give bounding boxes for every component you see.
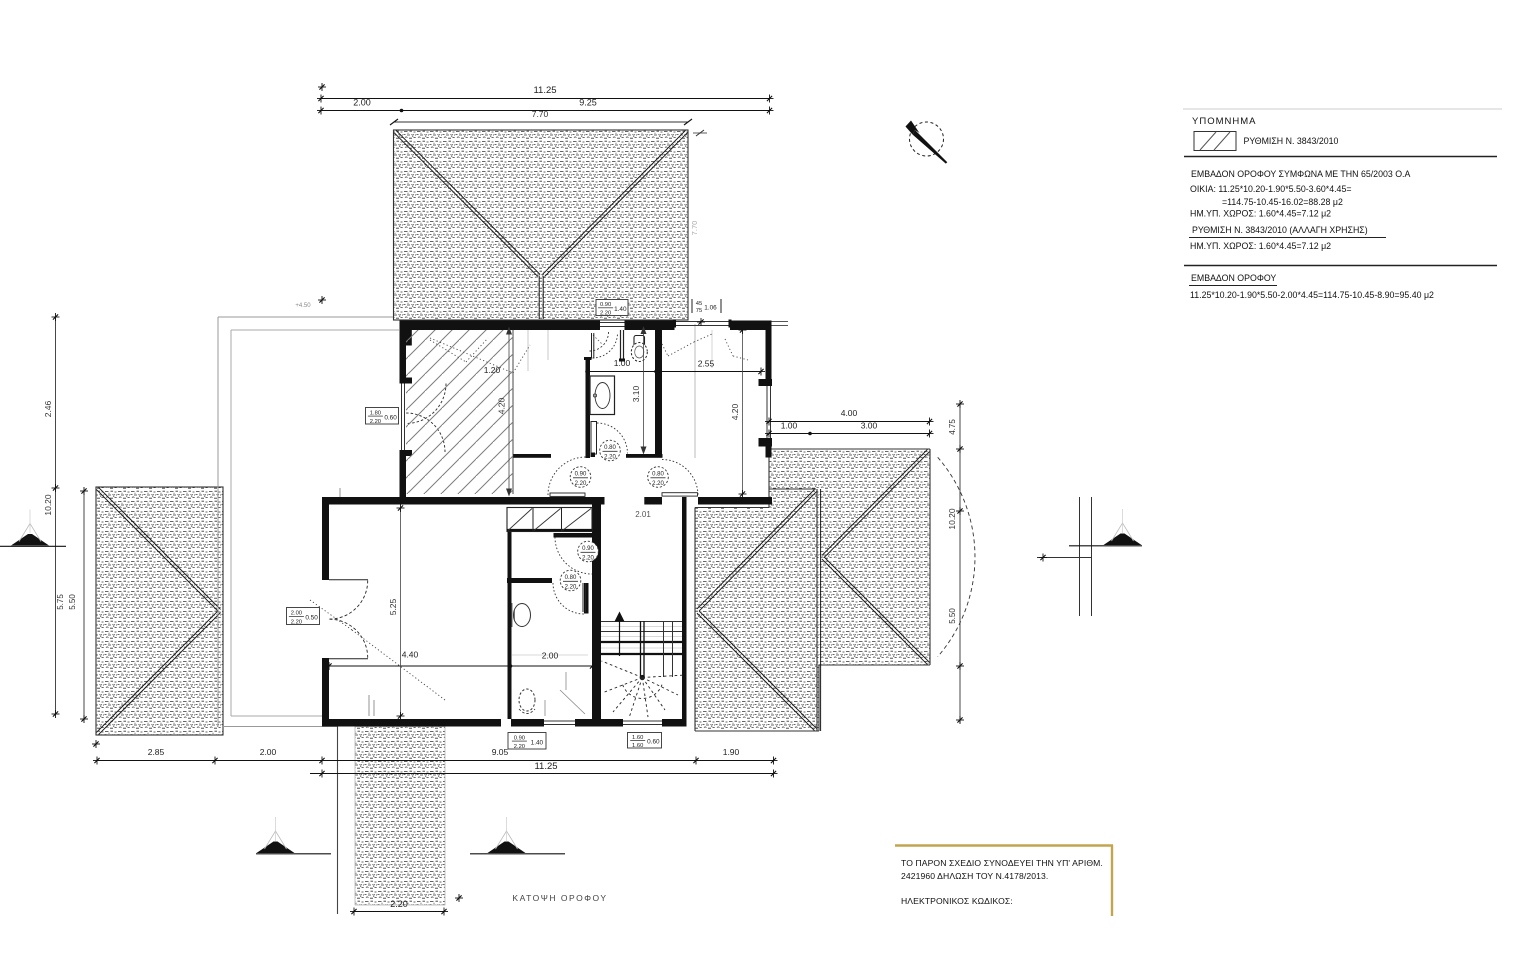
svg-text:0.80: 0.80 (652, 471, 664, 477)
svg-text:ΕΜΒΑΔΟΝ ΟΡΟΦΟΥ ΣΥΜΦΩΝΑ ΜΕ ΤΗΝ: ΕΜΒΑΔΟΝ ΟΡΟΦΟΥ ΣΥΜΦΩΝΑ ΜΕ ΤΗΝ 65/2003 Ο.… (1191, 169, 1410, 179)
svg-text:4.00: 4.00 (841, 408, 858, 418)
svg-text:0.80: 0.80 (565, 575, 577, 581)
svg-text:2.20: 2.20 (514, 744, 525, 750)
svg-text:11.25*10.20-1.90*5.50-2.00*4.4: 11.25*10.20-1.90*5.50-2.00*4.45=114.75-1… (1190, 290, 1434, 300)
svg-text:1.40: 1.40 (614, 306, 627, 313)
svg-text:3.10: 3.10 (631, 385, 641, 402)
svg-text:4.75: 4.75 (948, 419, 957, 435)
svg-text:ΕΜΒΑΔΟΝ ΟΡΟΦΟΥ: ΕΜΒΑΔΟΝ ΟΡΟΦΟΥ (1191, 273, 1276, 283)
svg-text:1.40: 1.40 (531, 739, 544, 746)
svg-text:=114.75-10.45-16.02=88.28 μ2: =114.75-10.45-16.02=88.28 μ2 (1222, 197, 1343, 207)
svg-text:1.06: 1.06 (704, 305, 717, 312)
svg-text:10.20: 10.20 (43, 494, 53, 516)
svg-text:11.25: 11.25 (534, 761, 557, 772)
svg-text:2.20: 2.20 (370, 419, 381, 425)
svg-text:0.60: 0.60 (647, 739, 660, 746)
svg-text:2.46: 2.46 (43, 400, 53, 417)
svg-text:0.90: 0.90 (600, 302, 611, 308)
svg-text:1.00: 1.00 (781, 421, 798, 431)
svg-text:2.20: 2.20 (604, 455, 616, 461)
svg-text:4.20: 4.20 (730, 403, 740, 420)
svg-text:0.50: 0.50 (305, 615, 318, 622)
svg-text:ΡΥΘΜΙΣΗ Ν. 3843/2010 (ΑΛΛΑΓΗ Χ: ΡΥΘΜΙΣΗ Ν. 3843/2010 (ΑΛΛΑΓΗ ΧΡΗΣΗΣ) (1192, 225, 1368, 235)
svg-text:ΟΙΚΙΑ: 11.25*10.20-1.90*5.50-3: ΟΙΚΙΑ: 11.25*10.20-1.90*5.50-3.60*4.45= (1190, 184, 1351, 194)
svg-text:1.60: 1.60 (632, 735, 643, 741)
svg-text:1.80: 1.80 (370, 410, 381, 416)
svg-text:0.90: 0.90 (582, 546, 594, 552)
svg-text:ΗΜ.ΥΠ. ΧΩΡΟΣ: 1.60*4.45=7.12 μ: ΗΜ.ΥΠ. ΧΩΡΟΣ: 1.60*4.45=7.12 μ2 (1190, 241, 1331, 251)
svg-text:11.25: 11.25 (533, 85, 556, 96)
svg-text:0.90: 0.90 (514, 735, 525, 741)
svg-text:2.00: 2.00 (353, 98, 371, 108)
svg-text:1.90: 1.90 (723, 747, 740, 757)
svg-text:2.00: 2.00 (542, 651, 559, 661)
svg-text:2.20: 2.20 (575, 481, 587, 487)
svg-text:2.20: 2.20 (600, 311, 611, 317)
svg-text:5.50: 5.50 (68, 594, 77, 610)
svg-text:ΡΥΘΜΙΣΗ Ν. 3843/2010: ΡΥΘΜΙΣΗ Ν. 3843/2010 (1244, 136, 1339, 146)
svg-text:0.60: 0.60 (384, 414, 397, 421)
svg-text:1.60: 1.60 (632, 743, 643, 749)
svg-text:75: 75 (696, 308, 702, 314)
svg-text:2.01: 2.01 (635, 510, 651, 519)
svg-text:9.25: 9.25 (579, 98, 597, 108)
svg-text:2.20: 2.20 (652, 481, 664, 487)
svg-text:7.70: 7.70 (690, 221, 699, 236)
svg-text:4.20: 4.20 (497, 397, 507, 414)
svg-text:2.00: 2.00 (260, 747, 277, 757)
svg-text:0.90: 0.90 (575, 471, 587, 477)
svg-text:ΤΟ ΠΑΡΟΝ ΣΧΕΔΙΟ ΣΥΝΟΔΕΥΕΙ ΤΗΝ: ΤΟ ΠΑΡΟΝ ΣΧΕΔΙΟ ΣΥΝΟΔΕΥΕΙ ΤΗΝ ΥΠ' ΑΡΙΘΜ. (901, 858, 1103, 868)
svg-text:ΗΛΕΚΤΡΟΝΙΚΟΣ ΚΩΔΙΚΟΣ:: ΗΛΕΚΤΡΟΝΙΚΟΣ ΚΩΔΙΚΟΣ: (901, 896, 1013, 906)
svg-text:0.80: 0.80 (604, 445, 616, 451)
svg-text:5.75: 5.75 (56, 594, 65, 610)
svg-text:3.00: 3.00 (861, 421, 878, 431)
svg-text:1.00: 1.00 (614, 358, 631, 368)
svg-text:45: 45 (696, 301, 702, 307)
svg-text:4.40: 4.40 (402, 650, 419, 660)
svg-text:2.85: 2.85 (148, 747, 165, 757)
svg-text:ΗΜ.ΥΠ. ΧΩΡΟΣ: 1.60*4.45=7.12 μ: ΗΜ.ΥΠ. ΧΩΡΟΣ: 1.60*4.45=7.12 μ2 (1190, 209, 1331, 219)
svg-text:2.55: 2.55 (698, 359, 715, 369)
svg-text:10.20: 10.20 (947, 508, 957, 530)
svg-text:2.20: 2.20 (565, 585, 577, 591)
svg-text:+4.50: +4.50 (295, 303, 311, 309)
svg-text:ΥΠΟΜΝΗΜΑ: ΥΠΟΜΝΗΜΑ (1192, 116, 1256, 127)
svg-text:1.20: 1.20 (484, 365, 501, 375)
svg-text:2.20: 2.20 (291, 620, 302, 626)
svg-text:ΚΑΤΟΨΗ ΟΡΟΦΟΥ: ΚΑΤΟΨΗ ΟΡΟΦΟΥ (512, 893, 607, 903)
svg-text:5.25: 5.25 (388, 598, 398, 615)
svg-text:2.00: 2.00 (291, 611, 302, 617)
svg-text:2.20: 2.20 (582, 556, 594, 562)
svg-text:5.50: 5.50 (948, 608, 957, 624)
svg-text:9.05: 9.05 (492, 747, 509, 757)
svg-text:7.70: 7.70 (532, 109, 549, 119)
svg-text:2421960 ΔΗΛΩΣΗ ΤΟΥ Ν.4178/2013: 2421960 ΔΗΛΩΣΗ ΤΟΥ Ν.4178/2013. (901, 871, 1048, 881)
svg-text:2.20: 2.20 (390, 899, 408, 909)
